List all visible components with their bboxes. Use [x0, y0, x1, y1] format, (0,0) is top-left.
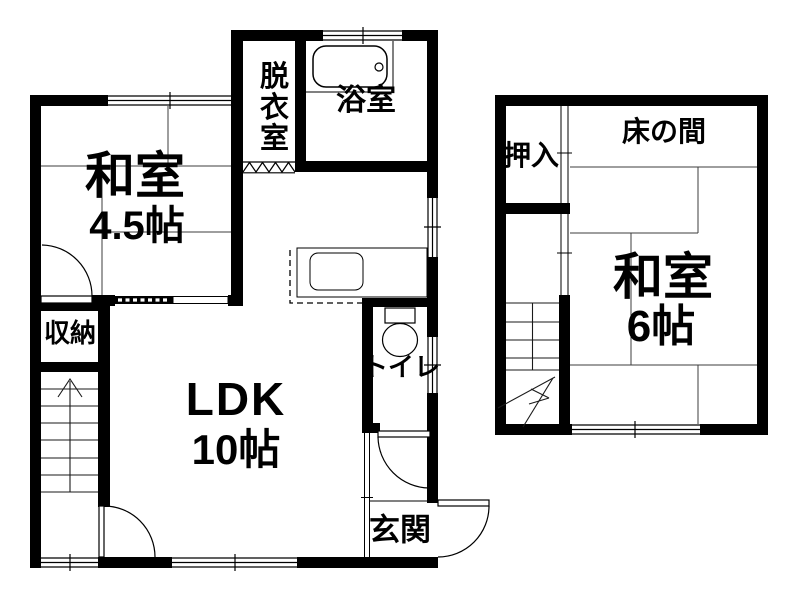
room-label-toire: トイレ — [362, 354, 440, 380]
door-toilet — [378, 431, 430, 488]
stairs-up-icon — [41, 379, 98, 492]
fusuma-sliding-doors — [115, 296, 228, 304]
window-bottom-left — [41, 554, 98, 571]
window-bath-top — [323, 27, 402, 44]
window-washitsu-top — [108, 92, 232, 109]
room-label-datsuishitsu: 脱衣室 — [257, 61, 286, 154]
room-label-tokonoma: 床の間 — [622, 118, 706, 146]
room-label-yokushitsu: 浴室 — [336, 86, 396, 116]
floorplan-image: 和室 4.5帖 脱衣室 浴室 収納 LDK 10帖 トイレ 玄関 押入 床の間 … — [0, 0, 800, 600]
kitchen-sink-icon — [310, 253, 363, 290]
room-label-washitsu-4-5: 和室 — [85, 151, 185, 201]
room-size-washitsu-6: 6帖 — [627, 305, 695, 349]
window-ldk-bottom — [172, 554, 297, 571]
room-size-washitsu-4-5: 4.5帖 — [89, 206, 185, 246]
room-label-shunou: 収納 — [44, 320, 96, 346]
toilet-icon — [383, 308, 418, 357]
window-floor2-bottom — [572, 421, 700, 438]
door-washitsu-storage — [41, 245, 92, 303]
room-size-ldk: 10帖 — [192, 429, 281, 471]
room-label-oshiire: 押入 — [503, 142, 559, 170]
stairs-icon — [498, 303, 559, 427]
oshiire-sliding-door — [557, 106, 572, 295]
room-label-genkan: 玄関 — [369, 515, 431, 546]
door-entrance — [438, 500, 489, 557]
room-label-washitsu-6: 和室 — [613, 252, 713, 302]
accordion-door — [243, 161, 295, 173]
room-label-ldk: LDK — [186, 376, 287, 422]
kitchen-counter — [290, 248, 427, 303]
door-ldk — [99, 506, 155, 557]
